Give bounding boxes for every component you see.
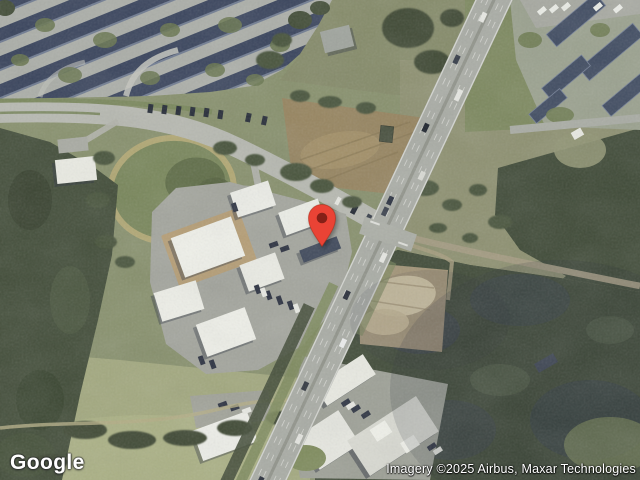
map-viewport[interactable]: Google Imagery ©2025 Airbus, Maxar Techn… [0,0,640,480]
map-pin-icon[interactable] [304,197,340,249]
imagery-attribution: Imagery ©2025 Airbus, Maxar Technologies [386,462,636,476]
google-logo[interactable]: Google [10,451,85,475]
pin-inner-dot [317,213,328,224]
pin-body [309,205,336,247]
